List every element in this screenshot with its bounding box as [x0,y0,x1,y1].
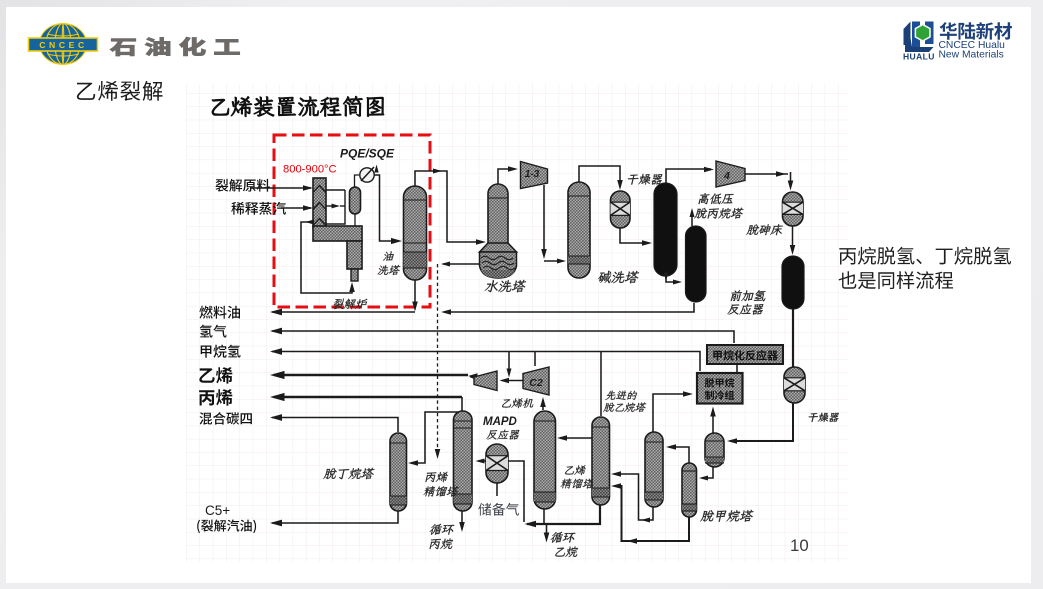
svg-text:1-3: 1-3 [525,169,540,180]
svg-text:C2: C2 [529,377,543,389]
svg-text:CNCEC: CNCEC [39,40,88,50]
svg-text:10: 10 [790,536,809,555]
svg-text:800-900°C: 800-900°C [283,164,337,176]
svg-text:PQE/SQE: PQE/SQE [340,147,395,161]
svg-text:C5+: C5+ [205,503,230,518]
svg-text:New Materials: New Materials [939,49,1004,60]
svg-text:HUALU: HUALU [903,52,935,62]
svg-text:4: 4 [723,170,730,182]
svg-text:MAPD: MAPD [483,416,517,428]
